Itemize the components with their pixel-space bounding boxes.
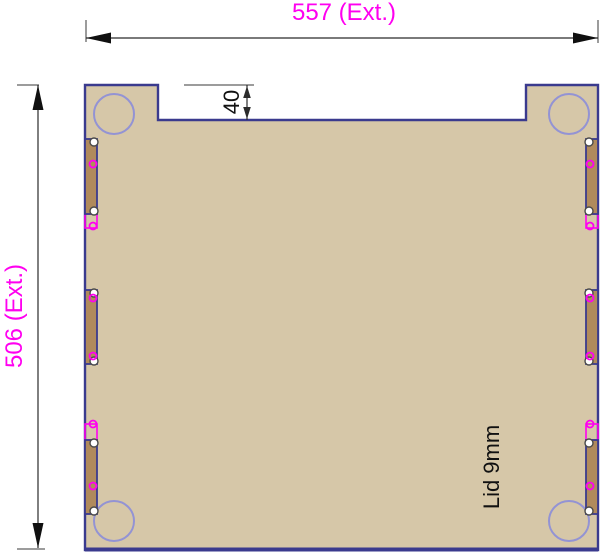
lid-panel-outline — [85, 85, 598, 550]
width-dimension: 557 (Ext.) — [86, 0, 598, 44]
notch-dimension: 40 — [184, 85, 254, 120]
drill-hole-marker — [90, 439, 98, 447]
tab-slot-left-1 — [85, 139, 97, 214]
part-label: Lid 9mm — [479, 425, 504, 509]
drill-hole-marker — [90, 507, 98, 515]
width-arrowhead-right — [573, 33, 598, 44]
drill-hole-marker — [585, 207, 593, 215]
lid-drawing-svg: 557 (Ext.) 506 (Ext.) 40 Lid 9mm — [0, 0, 600, 553]
tab-slot-right-3 — [586, 440, 598, 514]
notch-arrowhead-top — [243, 86, 251, 98]
height-dimension-label: 506 (Ext.) — [1, 264, 28, 368]
tab-slot-right-1 — [586, 139, 598, 214]
height-arrowhead-top — [33, 85, 44, 110]
drill-hole-marker — [90, 207, 98, 215]
notch-arrowhead-bottom — [243, 107, 251, 119]
height-dimension: 506 (Ext.) — [1, 85, 45, 549]
drill-hole-marker — [585, 507, 593, 515]
width-dimension-label: 557 (Ext.) — [292, 0, 396, 26]
width-arrowhead-left — [86, 33, 111, 44]
tab-slot-left-3 — [85, 440, 97, 514]
height-arrowhead-bottom — [33, 523, 44, 548]
drill-hole-marker — [585, 439, 593, 447]
notch-dimension-label: 40 — [219, 90, 244, 114]
drill-hole-marker — [90, 138, 98, 146]
cad-drawing-canvas: 557 (Ext.) 506 (Ext.) 40 Lid 9mm — [0, 0, 600, 553]
drill-hole-marker — [585, 138, 593, 146]
